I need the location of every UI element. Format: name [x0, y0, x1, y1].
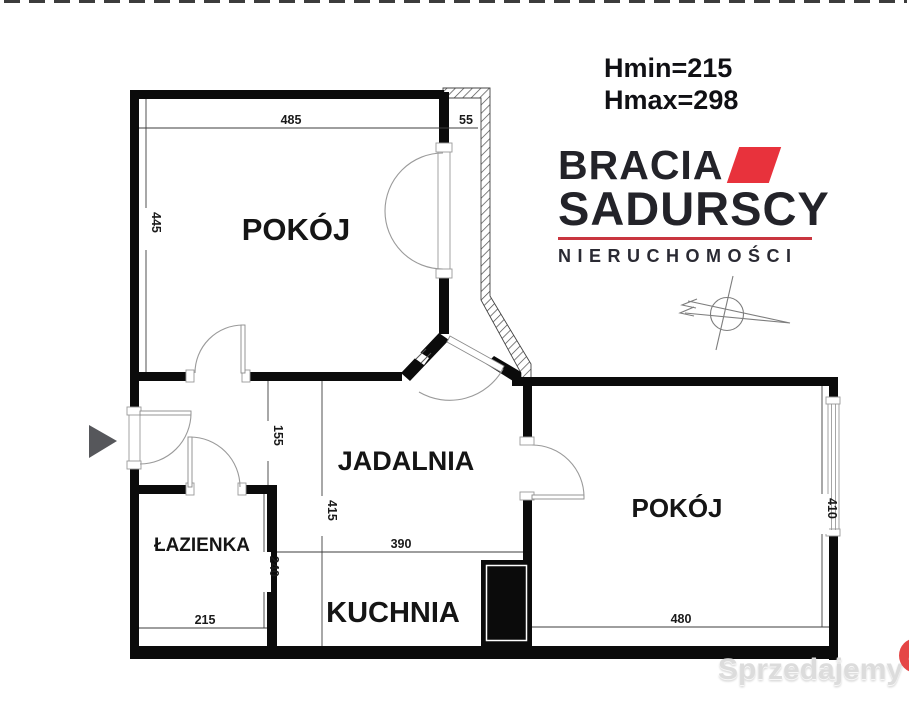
door-leaf-entrance	[140, 411, 191, 415]
dimension-label-410: 410	[825, 498, 839, 519]
jamb	[520, 437, 534, 445]
wall-room2-right-lower	[829, 531, 838, 660]
logo-mark-icon	[727, 147, 781, 183]
door-swing-bathroom	[190, 437, 240, 487]
logo-tagline: NIERUCHOMOŚCI	[558, 246, 820, 267]
watermark: Sprzedajemy .pl	[718, 652, 909, 687]
hmin-text: Hmin=215	[604, 52, 738, 84]
door-leaf-room2	[532, 495, 584, 499]
door-leaf-bathroom	[188, 437, 192, 487]
door-leaf-dining	[447, 336, 504, 372]
door-swing-room1	[195, 325, 243, 373]
dimension-label-480: 480	[671, 612, 692, 626]
dimension-label-240: 240	[267, 556, 281, 577]
wall-room2-top	[512, 377, 838, 386]
dimension-label-415: 415	[325, 500, 339, 521]
floor-plan: 485 55 445 155 415 390 240 215 410 480 P…	[0, 0, 909, 720]
door-swing-entrance	[140, 413, 191, 464]
jamb	[127, 461, 141, 469]
wall-left-upper	[130, 90, 139, 414]
room-label-room-right: POKÓJ	[631, 493, 722, 523]
shaft	[481, 560, 532, 646]
door-leaf-room1	[241, 325, 245, 373]
door-swing-french-lower	[385, 211, 443, 269]
agency-logo: BRACIA SADURSCY NIERUCHOMOŚCI	[558, 146, 820, 267]
door-swing-room2	[532, 445, 584, 497]
jamb	[826, 397, 840, 404]
room-label-kitchen: KUCHNIA	[326, 597, 460, 629]
logo-brand-line2: SADURSCY	[558, 186, 820, 232]
jamb	[127, 407, 141, 415]
door-swing-dining	[419, 369, 503, 400]
dimension-label-485: 485	[281, 113, 302, 127]
jamb	[436, 269, 452, 278]
entrance-frame	[129, 414, 140, 462]
dimension-label-215: 215	[195, 613, 216, 627]
wall-bathroom-top-left	[130, 485, 187, 494]
wall-room1-right-upper	[439, 92, 449, 151]
hmax-text: Hmax=298	[604, 84, 738, 116]
logo-underline	[558, 237, 812, 240]
hatched-wall	[443, 88, 531, 381]
entrance-arrow-icon	[89, 425, 117, 458]
screenshot-root: 485 55 445 155 415 390 240 215 410 480 P…	[0, 0, 909, 720]
ceiling-height-block: Hmin=215 Hmax=298	[604, 52, 738, 116]
watermark-text: Sprzedajemy	[718, 653, 903, 687]
wall-room1-bottom-right	[250, 372, 402, 381]
wall-room1-right-lower	[439, 271, 449, 334]
dimension-label-445: 445	[149, 212, 163, 233]
dimension-label-390: 390	[391, 537, 412, 551]
wall-top	[130, 90, 444, 99]
dimension-label-55: 55	[459, 113, 473, 127]
french-door-frame	[438, 151, 450, 271]
logo-brand-line1: BRACIA	[558, 146, 723, 184]
dimension-label-155: 155	[271, 425, 285, 446]
jamb	[436, 143, 452, 152]
room-label-bathroom: ŁAZIENKA	[154, 535, 250, 556]
north-arrow-icon	[680, 276, 790, 350]
jamb	[238, 483, 246, 495]
room-label-dining: JADALNIA	[338, 446, 475, 476]
wall-room1-bottom-left	[130, 372, 187, 381]
door-swing-french-upper	[385, 153, 443, 211]
wall-room2-left-upper	[523, 386, 532, 440]
room-label-room-top-left: POKÓJ	[242, 211, 351, 247]
jamb	[186, 370, 194, 382]
